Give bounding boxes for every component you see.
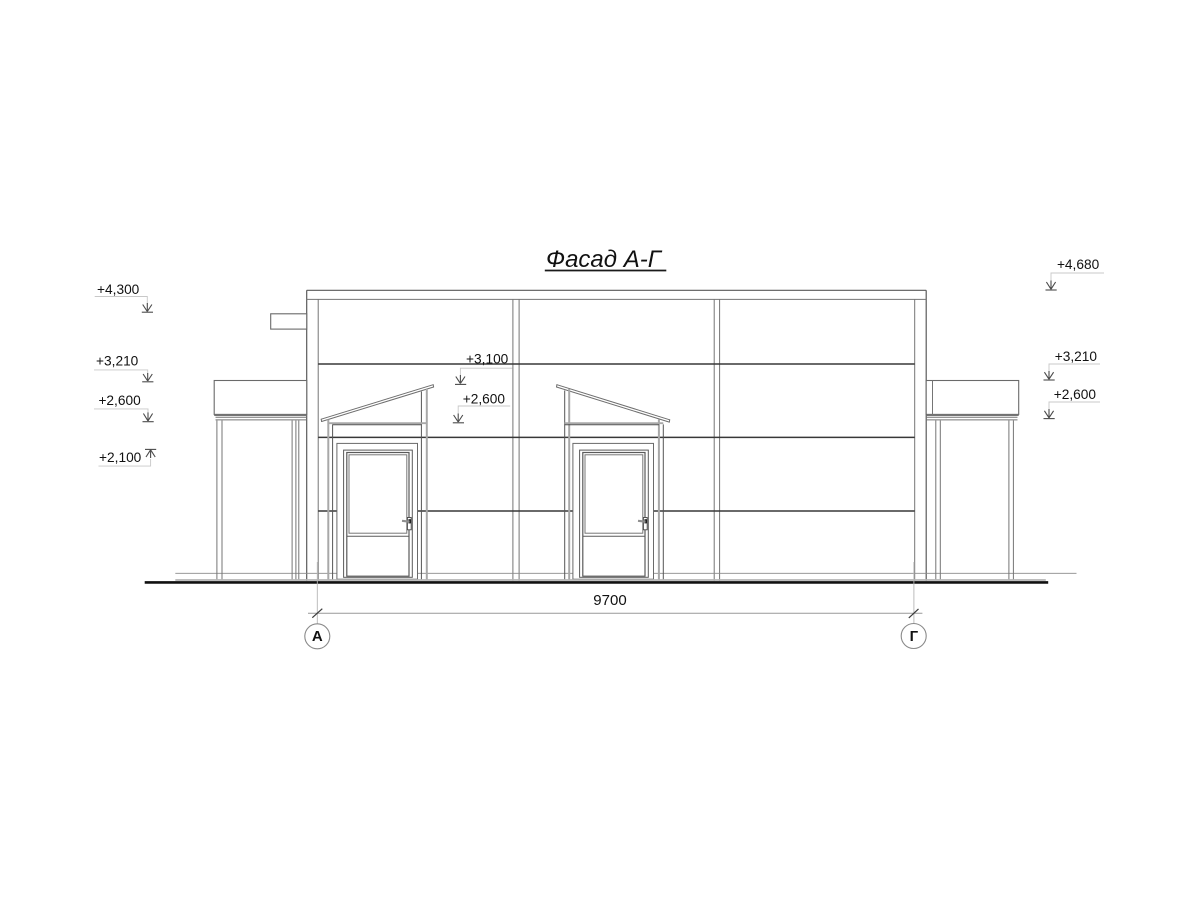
- svg-text:+3,100: +3,100: [466, 352, 509, 367]
- svg-text:+3,210: +3,210: [1055, 349, 1098, 364]
- svg-text:+2,600: +2,600: [1054, 387, 1097, 402]
- svg-text:Фасад А-Г: Фасад А-Г: [546, 246, 663, 273]
- svg-text:+4,680: +4,680: [1057, 257, 1100, 272]
- svg-text:+2,600: +2,600: [98, 393, 141, 408]
- svg-text:+2,600: +2,600: [463, 391, 506, 406]
- svg-text:+4,300: +4,300: [97, 282, 140, 297]
- svg-text:+3,210: +3,210: [96, 354, 139, 369]
- svg-text:Г: Г: [910, 628, 919, 645]
- svg-text:+2,100: +2,100: [99, 450, 142, 465]
- svg-text:А: А: [312, 628, 323, 645]
- svg-text:9700: 9700: [593, 592, 626, 609]
